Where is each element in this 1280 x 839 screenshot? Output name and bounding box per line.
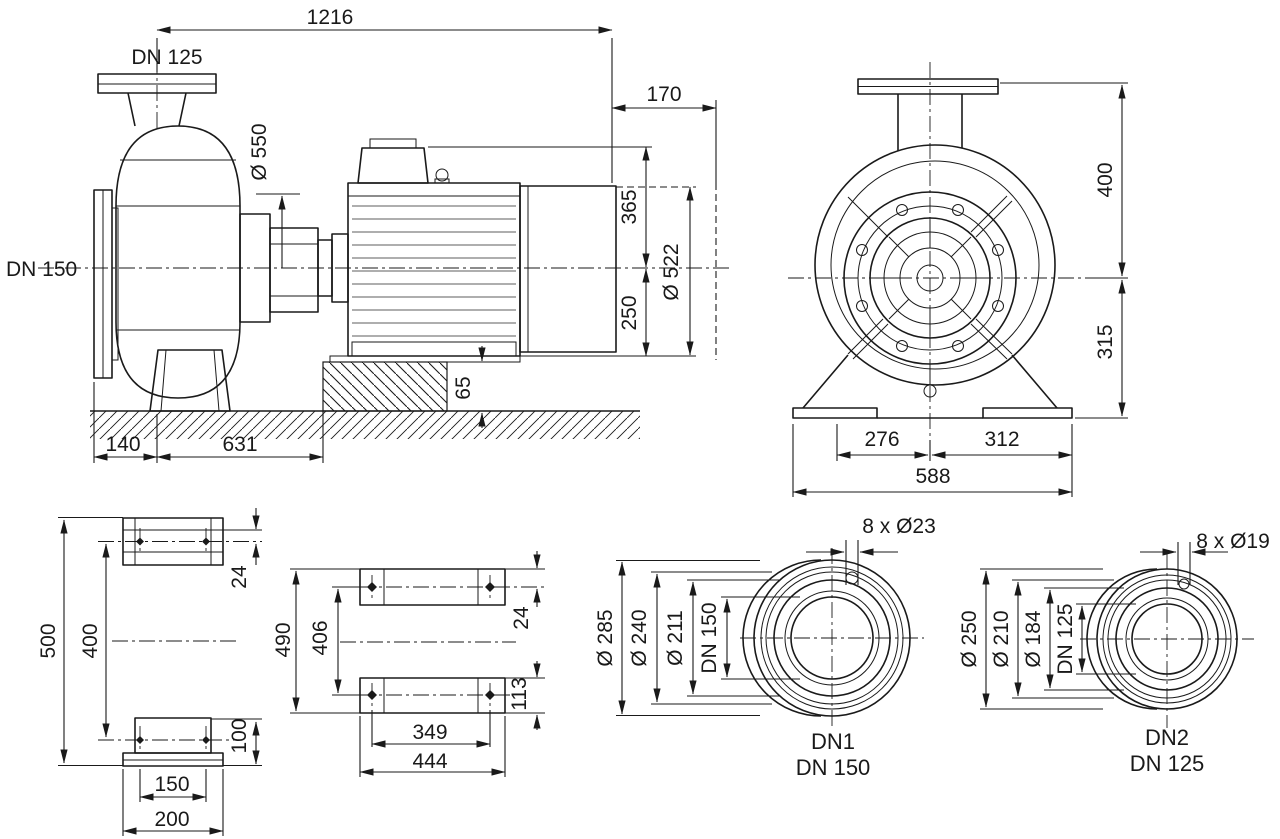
flange1-caption-line1: DN1 xyxy=(811,729,855,754)
dim-label-631: 631 xyxy=(222,433,257,456)
dim-label-184: Ø 184 xyxy=(1022,610,1045,668)
technical-drawing-page: 1216 DN 125 DN 150 Ø 550 170 365 Ø 522 2… xyxy=(0,0,1280,839)
flange2-caption-line1: DN2 xyxy=(1145,725,1189,750)
dim-label-210: Ø 210 xyxy=(990,610,1013,667)
dim-label-24-feet: 24 xyxy=(510,606,533,630)
dim-label-150: 150 xyxy=(154,773,189,796)
plinth-hatched xyxy=(323,362,447,411)
dim-label-250: 250 xyxy=(618,295,641,330)
dim-label-490: 490 xyxy=(272,622,295,657)
dim-label-315: 315 xyxy=(1094,324,1117,359)
dim-label-276: 276 xyxy=(864,428,899,451)
dim-label-total-length: 1216 xyxy=(307,6,354,29)
dim-label-240: Ø 240 xyxy=(628,609,651,666)
dim-label-400-plan: 400 xyxy=(79,623,102,658)
flange2-caption-line2: DN 125 xyxy=(1130,751,1205,776)
dim-label-dn125-bore: DN 125 xyxy=(1054,603,1077,674)
dim-label-65: 65 xyxy=(452,376,475,399)
dim-label-349: 349 xyxy=(412,721,447,744)
ground-hatch xyxy=(90,411,640,439)
dim-label-24-plan: 24 xyxy=(228,565,251,589)
dim-label-140: 140 xyxy=(105,433,140,456)
flange1-caption-line2: DN 150 xyxy=(796,755,871,780)
label-flange2-bolts: 8 x Ø19 xyxy=(1196,530,1270,553)
dim-label-200: 200 xyxy=(154,808,189,831)
label-flange1-bolts: 8 x Ø23 xyxy=(862,515,936,538)
dim-label-588: 588 xyxy=(915,465,950,488)
dim-label-500: 500 xyxy=(37,623,60,658)
dim-label-365: 365 xyxy=(618,189,641,224)
dim-label-400: 400 xyxy=(1094,162,1117,197)
dim-label-250-flange: Ø 250 xyxy=(958,610,981,667)
dim-label-100: 100 xyxy=(228,718,251,753)
pump-dimension-drawing: 1216 DN 125 DN 150 Ø 550 170 365 Ø 522 2… xyxy=(0,0,1280,839)
label-suction-dn: DN 150 xyxy=(6,258,77,281)
dim-label-444: 444 xyxy=(412,750,447,773)
dim-label-312: 312 xyxy=(984,428,1019,451)
dim-label-285: Ø 285 xyxy=(594,609,617,666)
dim-label-113: 113 xyxy=(508,677,531,710)
dim-label-211: Ø 211 xyxy=(664,610,687,666)
label-discharge-dn: DN 125 xyxy=(131,46,202,69)
dim-label-522: Ø 522 xyxy=(660,243,683,300)
dim-label-550: Ø 550 xyxy=(248,123,271,180)
dim-label-406: 406 xyxy=(309,620,332,655)
dim-label-dn150-bore: DN 150 xyxy=(698,602,721,673)
dim-label-overhang: 170 xyxy=(646,83,681,106)
